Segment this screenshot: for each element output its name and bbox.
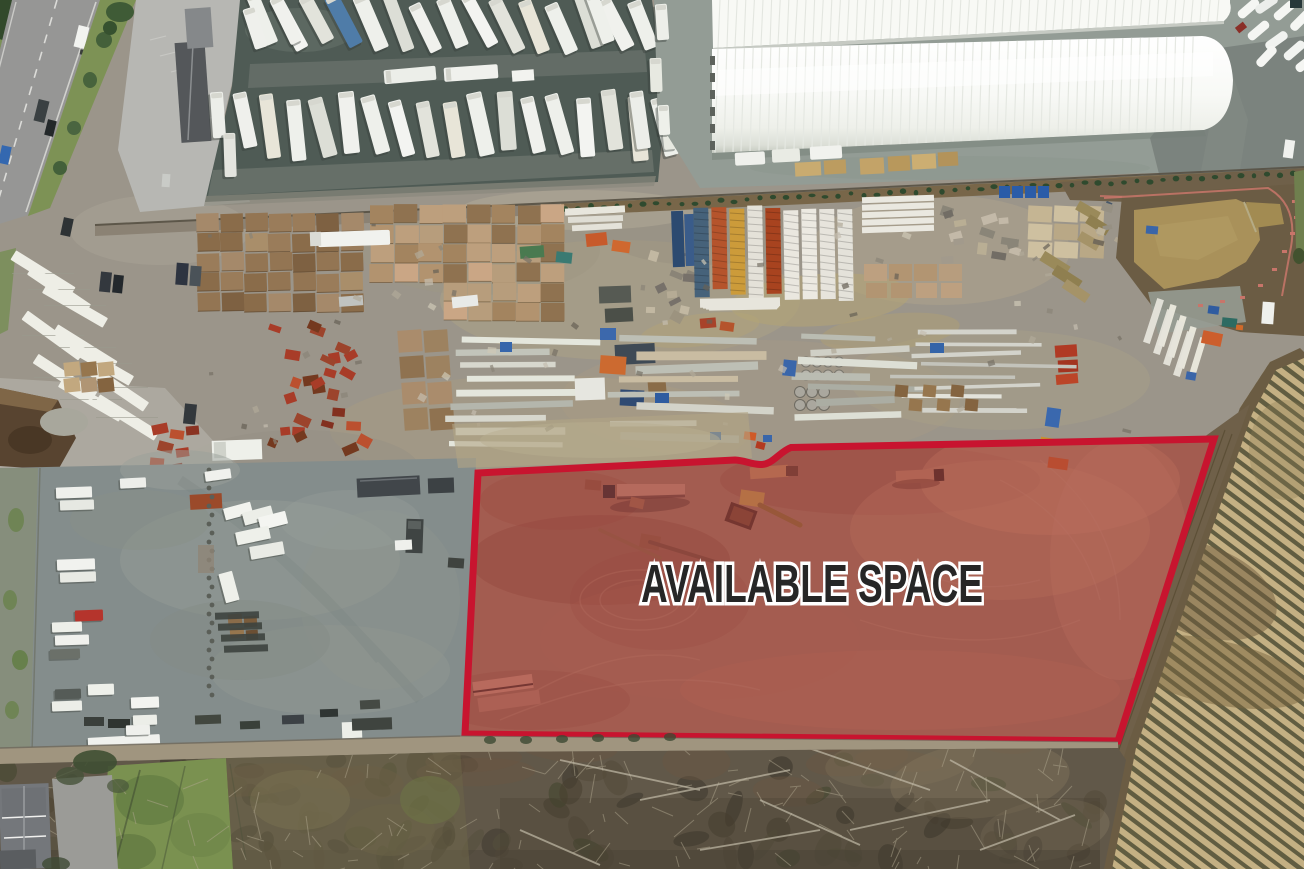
svg-text:AVAILABLE SPACE: AVAILABLE SPACE (641, 554, 983, 614)
